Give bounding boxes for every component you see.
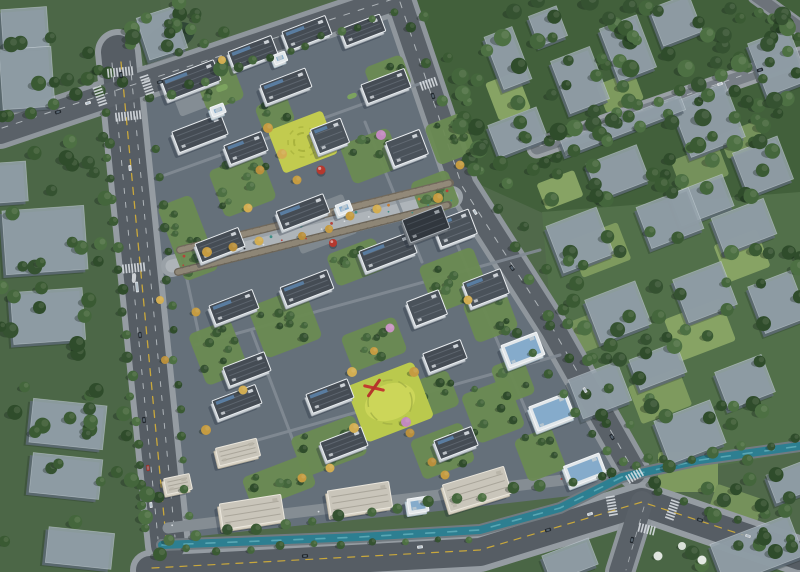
tree-highlight — [608, 384, 613, 389]
tree-highlight — [649, 228, 654, 233]
tree-highlight — [497, 205, 502, 210]
tree-highlight — [188, 80, 192, 84]
tree-highlight — [126, 353, 131, 358]
tree-highlight — [265, 164, 268, 167]
tree-highlight — [439, 379, 443, 383]
tree-highlight — [80, 242, 86, 248]
tree-highlight — [129, 393, 133, 397]
sphere-highlight — [318, 167, 321, 170]
tree-highlight — [450, 380, 453, 383]
tree-highlight — [556, 154, 561, 159]
tree-highlight — [794, 435, 798, 439]
tree-highlight — [768, 249, 774, 255]
context-top — [10, 288, 85, 345]
tree-highlight — [544, 158, 549, 163]
pedestrian — [427, 204, 429, 206]
tree-highlight — [13, 291, 19, 297]
vehicle-glass — [150, 503, 152, 507]
tree-highlight — [737, 517, 741, 521]
tree-highlight — [116, 467, 121, 472]
tree-highlight — [759, 357, 764, 362]
tree-highlight — [364, 347, 367, 350]
tree-highlight — [447, 54, 452, 59]
tree-highlight — [410, 23, 415, 28]
tree-highlight — [341, 28, 345, 32]
tree-highlight — [340, 542, 344, 546]
tree-highlight — [247, 205, 251, 209]
tree-highlight — [178, 382, 181, 385]
tree-highlight — [405, 418, 410, 423]
tree-highlight — [267, 124, 272, 128]
tree-highlight — [180, 406, 184, 410]
tree-highlight — [10, 39, 17, 46]
tree-highlight — [122, 77, 127, 82]
tree-highlight — [353, 250, 357, 254]
tree-highlight — [761, 405, 768, 412]
tree-highlight — [50, 33, 55, 38]
pedestrian — [388, 211, 390, 213]
tree-highlight — [426, 196, 430, 200]
tree-highlight — [405, 539, 408, 542]
tree-highlight — [221, 57, 225, 61]
tree-highlight — [168, 536, 173, 541]
tree-highlight — [601, 410, 607, 416]
tree-highlight — [207, 95, 211, 99]
tree-highlight — [788, 493, 794, 499]
tree-highlight — [601, 54, 606, 59]
tree-highlight — [444, 472, 448, 476]
tree-highlight — [136, 418, 140, 422]
tree-highlight — [629, 421, 633, 425]
tree-highlight — [246, 173, 250, 177]
tree-highlight — [541, 439, 545, 443]
tree-highlight — [24, 383, 29, 388]
tree-highlight — [592, 431, 596, 435]
tree-highlight — [681, 543, 685, 547]
tree-highlight — [556, 170, 561, 175]
tree-highlight — [313, 541, 316, 544]
tree-highlight — [750, 190, 757, 197]
tree-highlight — [546, 265, 551, 270]
tree-highlight — [126, 431, 131, 436]
tree-highlight — [784, 505, 790, 511]
tree-highlight — [195, 309, 199, 313]
vehicle-glass — [303, 555, 307, 557]
tree-highlight — [557, 125, 565, 133]
tree-highlight — [569, 247, 576, 254]
tree-highlight — [459, 162, 463, 166]
tree-highlight — [549, 437, 553, 441]
tree-highlight — [739, 14, 744, 19]
tree-highlight — [723, 495, 729, 501]
tree-highlight — [773, 94, 781, 102]
pedestrian — [171, 524, 173, 526]
awning — [387, 204, 390, 207]
tree-highlight — [455, 139, 458, 142]
tree-highlight — [104, 192, 111, 199]
tree-highlight — [483, 420, 487, 424]
tree-highlight — [204, 366, 208, 370]
tree-highlight — [738, 57, 746, 65]
tree-highlight — [747, 456, 752, 461]
tree-highlight — [786, 93, 793, 100]
tree-highlight — [519, 117, 525, 123]
tree-highlight — [679, 289, 685, 295]
tree-highlight — [707, 331, 712, 336]
tree-highlight — [208, 90, 211, 93]
tree-highlight — [671, 117, 678, 124]
tree-highlight — [209, 339, 213, 343]
tree-highlight — [513, 417, 517, 421]
tree-highlight — [98, 66, 103, 71]
tree-highlight — [639, 122, 644, 127]
tree-highlight — [138, 441, 142, 445]
tree-highlight — [84, 310, 90, 316]
pedestrian — [450, 200, 452, 202]
tree-highlight — [270, 55, 274, 59]
tree-highlight — [100, 478, 105, 483]
tree-highlight — [722, 29, 729, 36]
tree-highlight — [777, 109, 782, 114]
tree-highlight — [366, 138, 369, 141]
awning — [330, 222, 333, 225]
tree-highlight — [781, 14, 787, 20]
tree-highlight — [255, 525, 260, 530]
tree-highlight — [582, 261, 587, 266]
tree-highlight — [525, 134, 530, 139]
tree-highlight — [605, 193, 612, 200]
tree-highlight — [223, 358, 226, 361]
pedestrian — [318, 511, 320, 513]
tree-highlight — [572, 479, 576, 483]
tree-highlight — [551, 90, 556, 95]
tree-highlight — [629, 62, 637, 70]
tree-highlight — [746, 97, 752, 103]
tree-highlight — [228, 346, 231, 349]
tree-highlight — [628, 95, 635, 102]
tree-highlight — [518, 60, 525, 67]
tree-highlight — [223, 28, 228, 33]
tree-highlight — [702, 111, 710, 119]
sphere-highlight — [330, 240, 333, 243]
red-sphere-sculpture — [317, 166, 326, 175]
tree-highlight — [357, 25, 360, 28]
tree-highlight — [54, 78, 59, 83]
tree-highlight — [290, 312, 294, 316]
tree-highlight — [528, 275, 533, 280]
tree-highlight — [551, 194, 558, 201]
tree-highlight — [790, 535, 794, 539]
vehicle-glass — [143, 418, 145, 422]
tree-highlight — [730, 247, 737, 254]
tree-highlight — [216, 548, 220, 552]
tree-highlight — [66, 74, 72, 80]
tree-highlight — [647, 454, 651, 458]
tree-highlight — [731, 419, 737, 425]
tree-highlight — [88, 294, 95, 301]
tree-highlight — [563, 390, 567, 394]
tree-highlight — [610, 340, 616, 346]
tree-highlight — [205, 79, 209, 83]
tree-highlight — [140, 481, 145, 486]
tree-highlight — [222, 203, 225, 206]
tree-highlight — [467, 297, 471, 301]
tree-highlight — [164, 224, 168, 228]
tree-highlight — [771, 145, 778, 152]
tree-highlight — [592, 118, 599, 125]
tree-highlight — [645, 2, 652, 9]
tree-highlight — [11, 208, 17, 214]
tree-highlight — [657, 488, 661, 492]
context-building — [40, 526, 115, 572]
tree-highlight — [87, 157, 93, 163]
tree-highlight — [476, 75, 482, 81]
tree-highlight — [166, 277, 170, 281]
tree-highlight — [303, 334, 307, 338]
tree-highlight — [253, 163, 257, 167]
tree-highlight — [1, 112, 6, 117]
tree-highlight — [525, 435, 528, 438]
tree-highlight — [389, 325, 393, 329]
context-top — [0, 161, 28, 203]
tree-highlight — [573, 146, 579, 152]
tree-highlight — [763, 532, 770, 539]
tree-highlight — [677, 233, 683, 239]
tree-highlight — [667, 110, 672, 115]
car — [128, 165, 132, 171]
tree-highlight — [296, 177, 300, 181]
tree-highlight — [106, 155, 110, 159]
tree-highlight — [189, 513, 193, 517]
tree-highlight — [638, 373, 644, 379]
tree-highlight — [397, 505, 402, 510]
tree-highlight — [427, 497, 432, 502]
tree-highlight — [453, 135, 456, 138]
tree-highlight — [606, 137, 611, 142]
tree-highlight — [462, 87, 469, 94]
tree-highlight — [619, 56, 625, 62]
context-top — [29, 452, 103, 499]
tree-highlight — [459, 120, 466, 127]
tree-highlight — [390, 64, 394, 68]
tree-highlight — [222, 326, 225, 329]
tree-highlight — [611, 115, 618, 122]
tree-highlight — [260, 312, 263, 315]
tree-highlight — [759, 136, 766, 143]
tree-highlight — [98, 257, 103, 262]
tree-highlight — [175, 231, 178, 234]
tree-highlight — [734, 86, 740, 92]
vehicle-glass — [147, 466, 149, 470]
tree-highlight — [250, 183, 254, 187]
tree-highlight — [712, 448, 717, 453]
tree-highlight — [657, 7, 662, 12]
tree-highlight — [685, 325, 690, 330]
tree-highlight — [514, 243, 519, 248]
tree-highlight — [463, 134, 467, 138]
tree-highlight — [234, 338, 238, 342]
tree-highlight — [146, 14, 151, 19]
tree-highlight — [539, 481, 544, 486]
awning — [183, 255, 186, 258]
tree-highlight — [287, 480, 291, 484]
context-building — [0, 161, 29, 207]
tree-highlight — [131, 23, 138, 30]
awning — [418, 198, 421, 201]
tree-highlight — [569, 355, 573, 359]
tree-highlight — [486, 46, 492, 52]
pedestrian — [344, 220, 346, 222]
tree-highlight — [513, 483, 518, 488]
tree-highlight — [126, 331, 130, 335]
context-top — [0, 46, 55, 109]
tree-highlight — [553, 11, 559, 17]
tree-highlight — [33, 148, 39, 154]
tree-highlight — [51, 186, 56, 191]
tree-highlight — [752, 398, 759, 405]
tree-highlight — [145, 525, 149, 529]
tree-highlight — [632, 32, 638, 38]
tree-highlight — [769, 58, 774, 63]
tree-highlight — [771, 444, 775, 448]
tree-highlight — [706, 483, 712, 489]
tree-highlight — [168, 20, 172, 24]
tree-highlight — [102, 133, 107, 138]
tree-highlight — [726, 279, 731, 284]
tree-highlight — [110, 176, 114, 180]
tree-highlight — [431, 459, 435, 463]
tree-highlight — [762, 75, 766, 79]
tree-highlight — [437, 537, 440, 540]
tree-highlight — [734, 137, 741, 144]
car — [138, 332, 142, 338]
pedestrian — [182, 264, 184, 266]
tree-highlight — [205, 426, 210, 431]
tree-highlight — [174, 20, 181, 27]
tree-highlight — [645, 348, 651, 354]
tree-highlight — [459, 70, 467, 78]
tree-highlight — [278, 310, 282, 314]
tree-highlight — [479, 143, 486, 150]
tree-highlight — [304, 323, 307, 326]
tree-highlight — [93, 168, 98, 173]
tree-highlight — [499, 322, 503, 326]
tree-highlight — [445, 390, 448, 393]
tree-highlight — [303, 446, 307, 450]
car — [149, 502, 153, 508]
tree-highlight — [227, 526, 232, 531]
tree-highlight — [380, 131, 385, 136]
tree-highlight — [712, 132, 717, 137]
pedestrian — [368, 216, 370, 218]
tree-highlight — [685, 62, 693, 70]
tree-highlight — [501, 31, 509, 39]
tree-highlight — [652, 169, 658, 175]
tree-highlight — [628, 311, 634, 317]
tree-highlight — [593, 106, 599, 112]
tree-highlight — [195, 15, 199, 19]
tree-highlight — [706, 182, 712, 188]
tree-highlight — [679, 86, 684, 91]
tree-highlight — [376, 206, 380, 210]
tree-highlight — [252, 57, 256, 61]
tree-highlight — [172, 357, 176, 361]
tree-highlight — [14, 407, 21, 414]
tree-highlight — [566, 81, 571, 86]
tree-highlight — [611, 469, 616, 474]
tree-highlight — [661, 179, 668, 186]
tree-highlight — [87, 48, 93, 54]
tree-highlight — [754, 245, 760, 251]
tree-highlight — [726, 305, 732, 311]
tree-highlight — [761, 500, 767, 506]
tree-highlight — [334, 257, 337, 260]
tree-highlight — [595, 190, 601, 196]
tree-highlight — [183, 486, 187, 490]
tree-highlight — [774, 546, 781, 553]
masterplan-aerial-rendering — [0, 0, 800, 572]
tree-highlight — [109, 139, 114, 144]
tree-highlight — [203, 40, 207, 44]
tree-highlight — [258, 238, 262, 242]
tree-highlight — [505, 327, 509, 331]
tree-highlight — [474, 430, 477, 433]
tree-highlight — [576, 278, 583, 285]
tree-highlight — [394, 9, 397, 12]
tree-highlight — [706, 29, 713, 36]
tree-highlight — [159, 174, 163, 178]
tree-highlight — [379, 151, 383, 155]
tree-highlight — [349, 213, 353, 217]
tree-highlight — [697, 139, 704, 146]
tree-highlight — [168, 249, 171, 252]
tree-highlight — [71, 238, 76, 243]
tree-highlight — [720, 70, 726, 76]
tree-highlight — [86, 431, 91, 436]
tree-highlight — [664, 171, 669, 176]
tree-highlight — [624, 22, 631, 29]
tree-highlight — [622, 82, 628, 88]
tree-highlight — [425, 59, 430, 64]
tree-highlight — [666, 333, 671, 338]
tree-highlight — [788, 247, 794, 253]
car — [142, 417, 146, 423]
tree-highlight — [786, 21, 794, 29]
tree-highlight — [259, 167, 263, 171]
tree-highlight — [636, 462, 640, 466]
tree-highlight — [594, 179, 600, 185]
tree-highlight — [733, 402, 738, 407]
tree-highlight — [87, 73, 93, 79]
tree-highlight — [301, 233, 305, 237]
tree-highlight — [574, 409, 579, 414]
tree-highlight — [711, 154, 718, 161]
tree-highlight — [121, 308, 125, 312]
tree-highlight — [715, 58, 721, 64]
tree-highlight — [149, 94, 153, 98]
tree-highlight — [53, 100, 58, 105]
tree-highlight — [734, 113, 740, 119]
tree-highlight — [760, 280, 765, 285]
tree-highlight — [164, 357, 168, 361]
tree-highlight — [37, 78, 44, 85]
tree-highlight — [619, 246, 625, 252]
tree-highlight — [762, 165, 768, 171]
tree-highlight — [658, 311, 664, 317]
tree-highlight — [40, 259, 45, 264]
tree-highlight — [89, 404, 95, 410]
tree-highlight — [312, 518, 316, 522]
